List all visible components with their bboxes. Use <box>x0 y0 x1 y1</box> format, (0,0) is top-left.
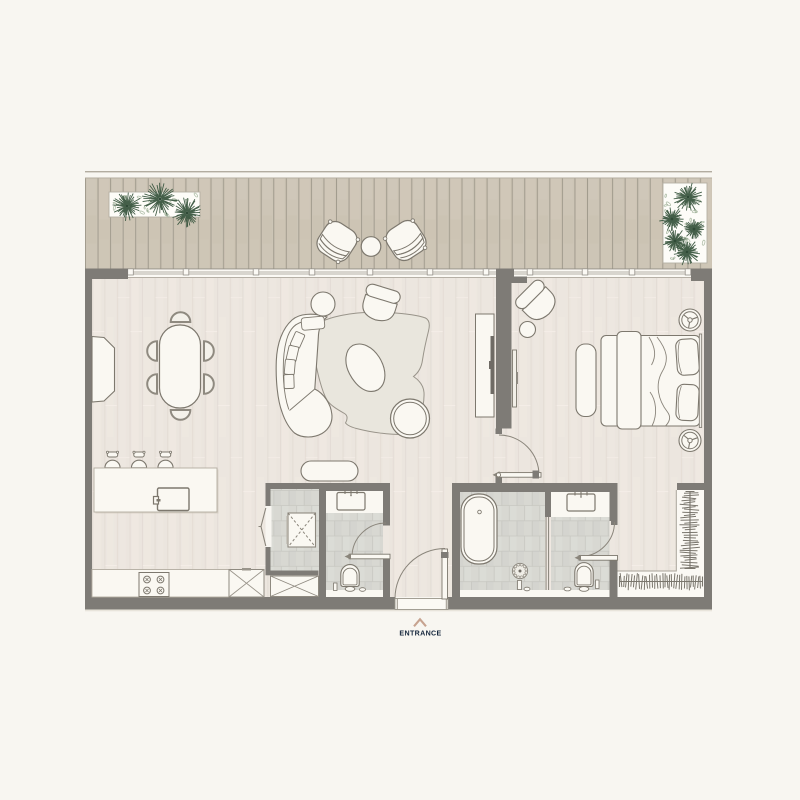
svg-text:ENTRANCE: ENTRANCE <box>399 630 441 638</box>
